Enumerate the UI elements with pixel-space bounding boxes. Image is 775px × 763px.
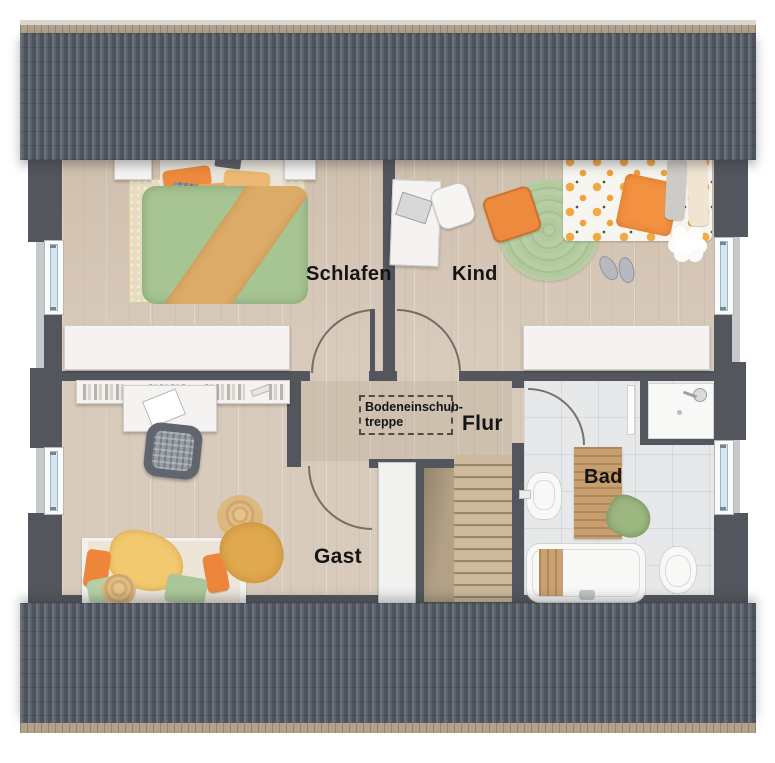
window-glass	[720, 241, 728, 311]
floor-plan: Schlafen Kind Flur Gast Bad Bodeneinschu…	[0, 0, 775, 763]
roof-eave-board	[20, 723, 756, 733]
duvet-fold	[165, 186, 308, 304]
attic-hatch-note: Bodeneinschub- treppe	[359, 395, 453, 435]
schlafen-label: Schlafen	[306, 263, 392, 286]
window-kind	[714, 237, 734, 315]
office-chair	[142, 421, 203, 481]
stair-winder	[424, 468, 454, 602]
books	[83, 384, 127, 400]
roof-bottom	[20, 603, 756, 723]
window-glass	[720, 444, 728, 511]
nightstand-left	[114, 158, 152, 180]
flower-table	[668, 226, 708, 262]
daybed-pillow-knit	[102, 574, 136, 606]
towel-rail	[627, 385, 635, 435]
shower-wall-left	[640, 381, 648, 443]
left-exterior-wall	[44, 158, 62, 603]
attic-hatch-line1: Bodeneinschub-	[365, 400, 447, 415]
bed-duvet	[142, 186, 308, 304]
roof-top	[20, 33, 756, 160]
tub-faucet	[579, 590, 595, 600]
bath-caddy	[539, 549, 563, 596]
wall-kind-bad	[459, 371, 714, 381]
wall-bad-left-upper	[512, 381, 524, 388]
wall-bad-left-lower	[512, 443, 524, 603]
bathtub	[526, 543, 646, 603]
books	[269, 384, 285, 400]
sink-faucet	[519, 490, 531, 499]
chair-cushion	[151, 430, 195, 472]
window-glass	[50, 244, 58, 311]
kind-label: Kind	[452, 263, 498, 286]
staircase	[454, 455, 512, 602]
right-wall-pier-mid	[732, 362, 746, 440]
left-wall-pier-top	[28, 158, 44, 242]
left-wall-pier-bottom	[28, 513, 44, 603]
window-bad	[714, 440, 734, 515]
window-schlafen	[44, 240, 64, 315]
sink-basin	[533, 480, 555, 510]
attic-hatch-line2: treppe	[365, 415, 447, 430]
stair-door	[378, 462, 416, 604]
shower	[648, 383, 714, 439]
left-wall-pier-mid	[30, 368, 44, 448]
flur-label: Flur	[462, 412, 503, 436]
kind-pillow-gray	[664, 158, 687, 221]
window-gast	[44, 447, 64, 515]
shower-drain	[677, 410, 682, 415]
right-wall-pier-bottom	[732, 513, 748, 603]
kind-pillow-dotted	[687, 158, 709, 227]
schlafen-door-leaf	[370, 309, 375, 371]
gast-label: Gast	[314, 545, 362, 569]
toilet-seat	[665, 555, 691, 587]
roof-ridge-board	[20, 25, 756, 33]
nightstand-right	[284, 158, 316, 180]
window-glass	[50, 451, 58, 511]
right-wall-pier-top	[732, 158, 748, 237]
sink	[526, 472, 562, 520]
bad-label: Bad	[584, 466, 623, 489]
wardrobe-kind	[523, 325, 710, 370]
toilet	[659, 546, 697, 594]
wardrobe-schlafen	[64, 325, 290, 370]
right-exterior-wall	[714, 158, 732, 603]
